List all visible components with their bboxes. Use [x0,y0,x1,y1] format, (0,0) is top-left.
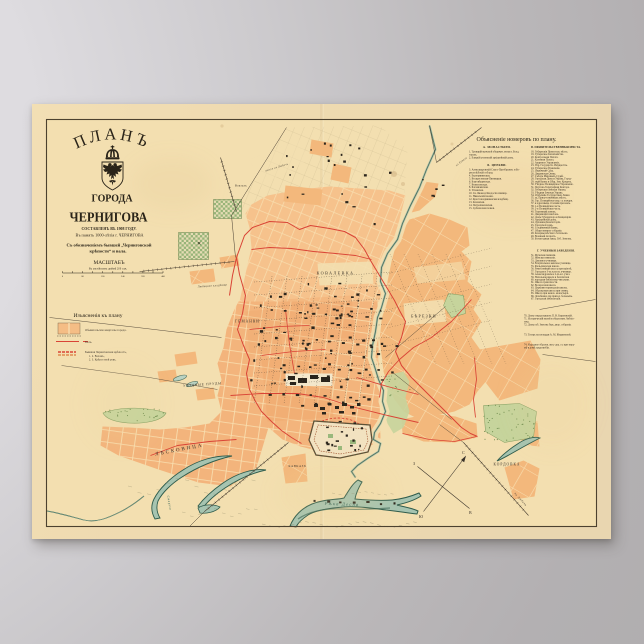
svg-text:С: С [462,450,465,455]
svg-text:З: З [413,461,415,466]
svg-text:КОВАЛЕВКА: КОВАЛЕВКА [317,271,355,276]
svg-text:Ю: Ю [419,514,423,519]
svg-text:ГОРОДА: ГОРОДА [92,194,134,205]
svg-text:Объясненіе номеровъ по плану.: Объясненіе номеровъ по плану. [477,136,557,143]
svg-text:мѣ и домѣ трудолюбія.: мѣ и домѣ трудолюбія. [524,347,550,350]
svg-text:2. Елецкій успенскій архіерейс: 2. Елецкій успенскій архіерейскій домъ. [469,157,514,160]
svg-text:СОСТАВЛЕНЪ ВЪ 1908 ГОДУ.: СОСТАВЛЕНЪ ВЪ 1908 ГОДУ. [82,226,137,231]
svg-text:Г. УЧЕБНЫЯ ЗАВЕДЕНІЯ.: Г. УЧЕБНЫЯ ЗАВЕДЕНІЯ. [537,250,575,253]
svg-text:ЧЕРНИГОВА: ЧЕРНИГОВА [70,211,149,226]
svg-text:2. 3. Крѣпостной ровъ.: 2. 3. Крѣпостной ровъ. [89,359,117,362]
svg-text:Въ англійскомъ дюймѣ 200 саж.: Въ англійскомъ дюймѣ 200 саж. [89,268,128,271]
svg-text:БѢРЕЗКИ: БѢРЕЗКИ [411,314,437,319]
svg-text:В. ПРАВИТЕЛЬСТВЕННЫЯ МѢСТА.: В. ПРАВИТЕЛЬСТВЕННЫЯ МѢСТА. [531,146,581,149]
svg-text:КОРДОВКА: КОРДОВКА [493,463,520,467]
svg-text:67. Городская амбулаторія.: 67. Городская амбулаторія. [531,298,561,301]
svg-text:Вокзалъ: Вокзалъ [235,185,247,188]
svg-text:✕: ✕ [197,241,201,247]
svg-text:Изъясненія къ плану: Изъясненія къ плану [74,313,123,319]
svg-text:Б. ЦЕРКВИ.: Б. ЦЕРКВИ. [487,163,506,167]
svg-text:Бывшая Черниговская крѣпость,: Бывшая Черниговская крѣпость, [85,351,127,354]
svg-text:Въ память 1000-лѣтія г. ЧЕРНИГ: Въ память 1000-лѣтія г. ЧЕРНИГОВА [76,234,144,238]
svg-text:50. Богоугодныя завед. Губ. Зе: 50. Богоугодныя завед. Губ. Земства. [531,238,572,241]
svg-text:Обывательскіе кварталы города.: Обывательскіе кварталы города. [85,329,127,332]
svg-text:крѣпости“ и вала.: крѣпости“ и вала. [90,249,127,254]
svg-text:ГЕМАНКИ: ГЕМАНКИ [235,320,260,324]
svg-text:Съ обозначеніемъ бывшей „Черни: Съ обозначеніемъ бывшей „Черниговской [67,243,153,248]
svg-text:МАСШТАБЪ: МАСШТАБЪ [94,261,125,266]
svg-text:В: В [469,510,472,515]
svg-text:Валъ.: Валъ. [85,341,92,344]
svg-text:72. Домъ губ. Земства быв. дво: 72. Домъ губ. Земства быв. двор. собрані… [524,324,572,327]
svg-text:71. Историческій музей и общес: 71. Историческій музей и обществен. библ… [524,318,575,321]
svg-text:КАВКАЗЪ: КАВКАЗЪ [288,464,306,468]
svg-text:А. МОНАСТЫРИ.: А. МОНАСТЫРИ. [483,145,511,149]
svg-text:73. Театръ на площади А. М. Жи: 73. Театръ на площади А. М. Жидковской. [524,334,571,337]
svg-text:15. Срѣтенская полков.: 15. Срѣтенская полков. [469,207,495,210]
